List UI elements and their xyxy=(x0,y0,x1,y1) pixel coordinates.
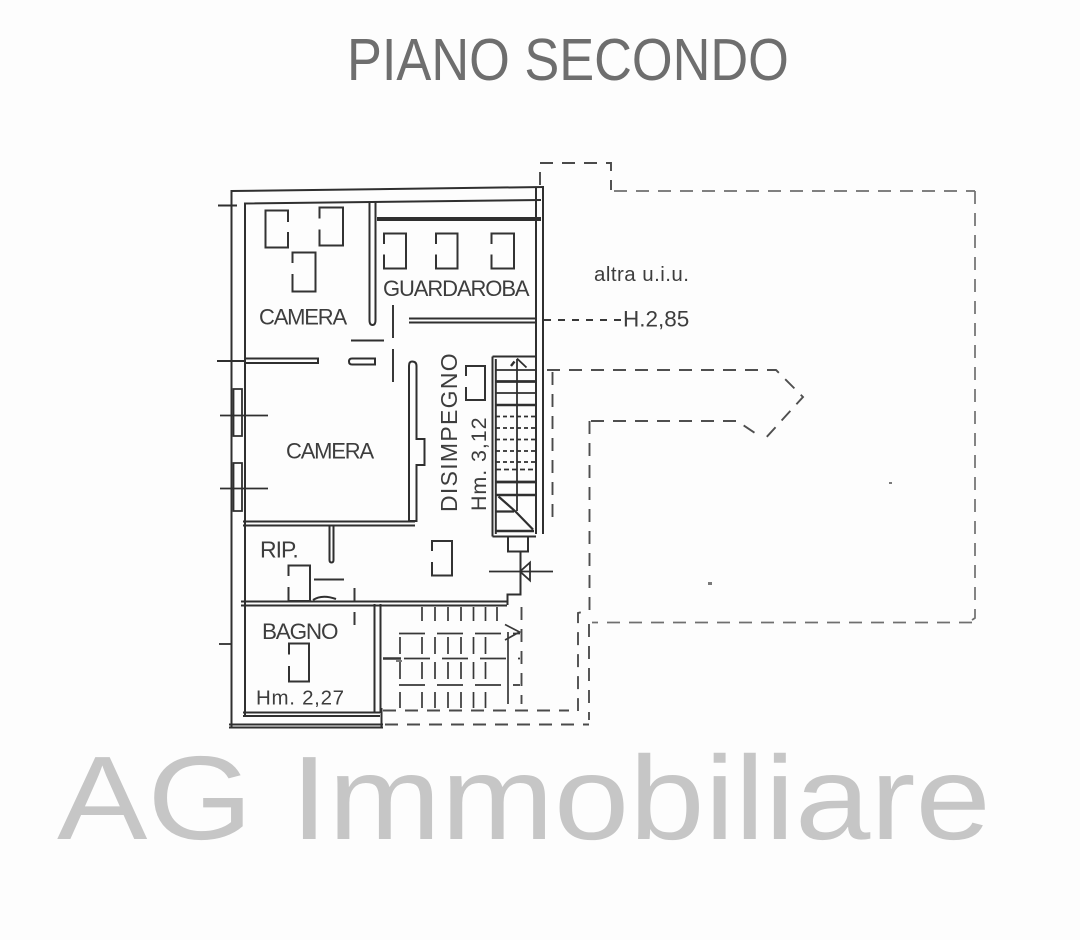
svg-text:CAMERA: CAMERA xyxy=(259,305,347,330)
svg-text:RIP.: RIP. xyxy=(260,537,298,563)
svg-text:Hm. 2,27: Hm. 2,27 xyxy=(256,687,345,710)
svg-text:altra u.i.u.: altra u.i.u. xyxy=(594,263,689,286)
svg-text:DISIMPEGNO: DISIMPEGNO xyxy=(436,352,462,512)
svg-text:H.2,85: H.2,85 xyxy=(623,307,689,332)
svg-text:AG Immobiliare: AG Immobiliare xyxy=(57,733,991,865)
svg-text:BAGNO: BAGNO xyxy=(262,619,338,644)
svg-text:CAMERA: CAMERA xyxy=(286,439,374,464)
svg-text:GUARDAROBA: GUARDAROBA xyxy=(383,276,530,301)
svg-text:Hm. 3,12: Hm. 3,12 xyxy=(467,417,491,511)
svg-text:PIANO SECONDO: PIANO SECONDO xyxy=(347,27,789,93)
